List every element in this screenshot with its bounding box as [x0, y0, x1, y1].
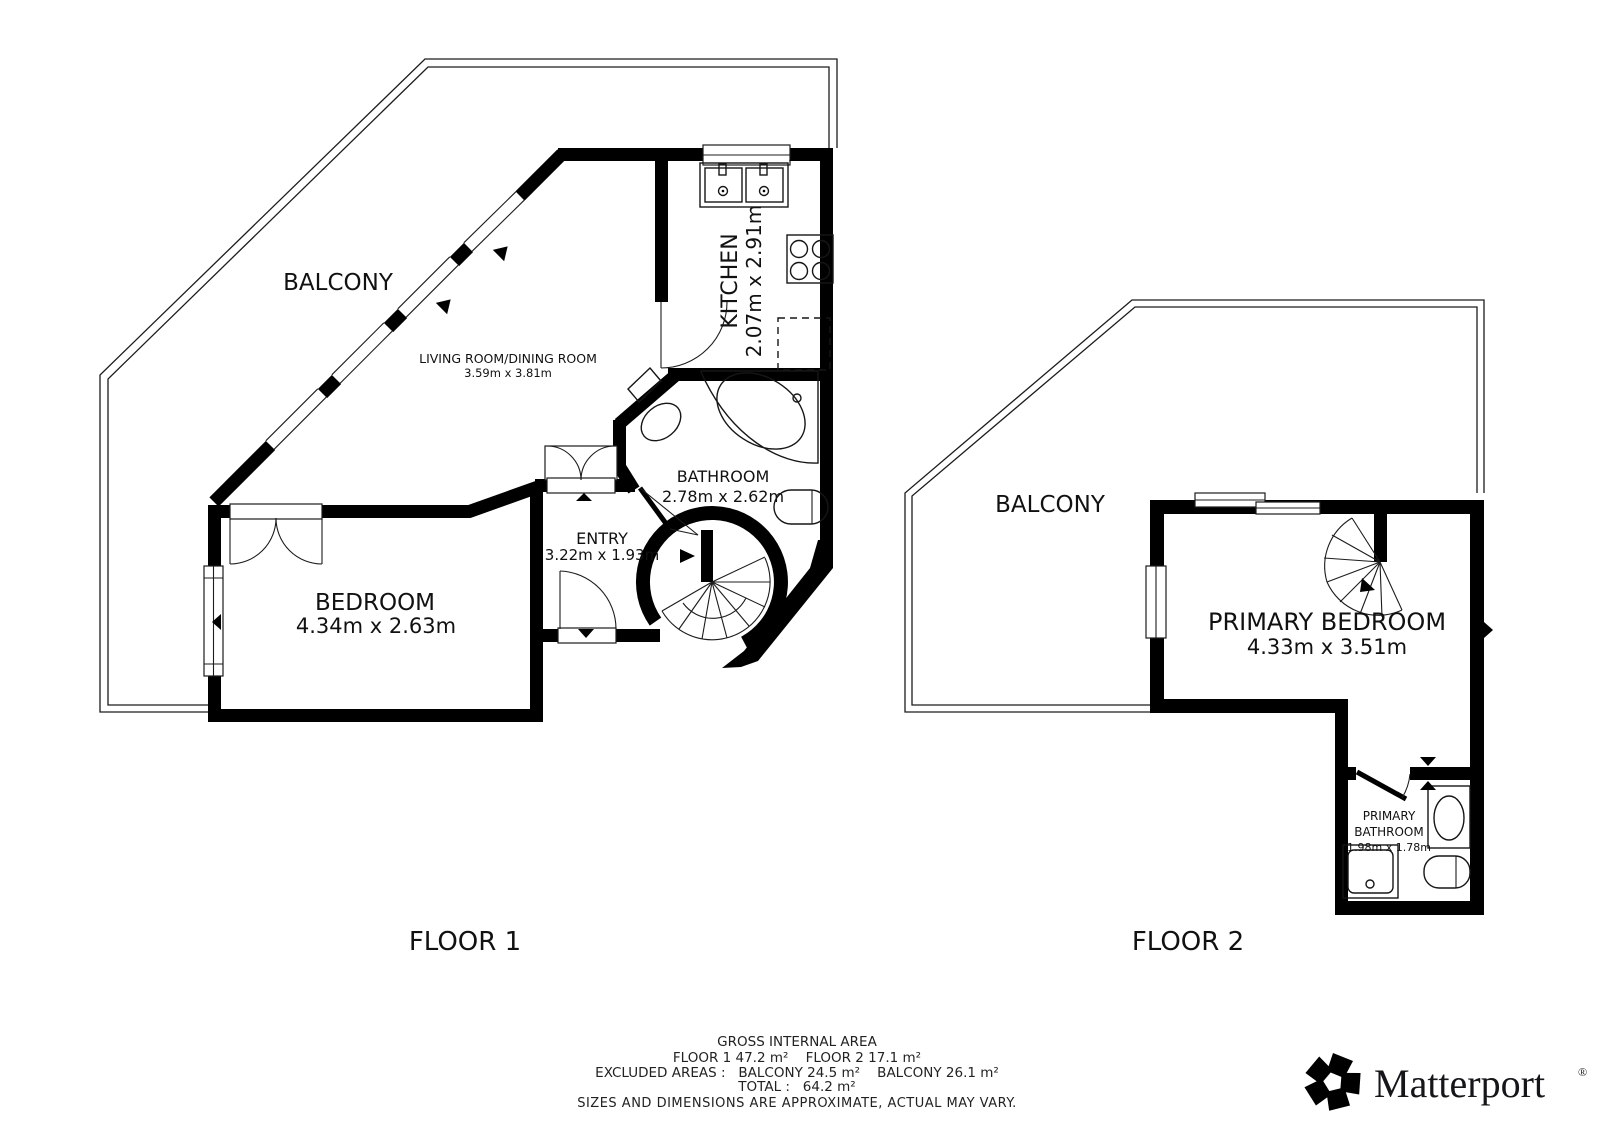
kitchen-label: KITCHEN — [718, 233, 743, 328]
kitchen-door — [655, 302, 727, 368]
bedroom-label: BEDROOM — [315, 590, 435, 616]
floor1-plan: BALCONY LIVING ROOM/DINING ROOM 3.59m x … — [100, 59, 837, 722]
stair-treads — [1324, 518, 1402, 617]
floor-titles: FLOOR 1 FLOOR 2 — [409, 927, 1244, 957]
floor-areas-line: FLOOR 1 47.2 m² FLOOR 2 17.1 m² — [673, 1050, 921, 1066]
stair-newel-wall — [701, 530, 713, 582]
floor2-plan: BALCONY PRIMARY BEDROOM 4.33m x 3.51m PR… — [905, 300, 1493, 915]
primary-bathroom-label-line1: PRIMARY — [1363, 809, 1416, 823]
entry-double-door — [545, 446, 617, 493]
registered-trademark-symbol: ® — [1578, 1065, 1587, 1079]
entry-dims: 3.22m x 1.93m — [545, 546, 659, 564]
primary-bedroom-left-window — [1146, 566, 1166, 638]
bathroom-label: BATHROOM — [677, 467, 770, 486]
bedroom-double-door — [230, 504, 322, 564]
floor1-title: FLOOR 1 — [409, 927, 521, 957]
living-room-dims: 3.59m x 3.81m — [464, 366, 552, 380]
floor2-spiral-staircase — [1324, 518, 1402, 617]
living-room-label: LIVING ROOM/DINING ROOM — [419, 351, 597, 366]
primary-bedroom-top-window-2 — [1256, 502, 1320, 514]
floorplan-canvas: BALCONY LIVING ROOM/DINING ROOM 3.59m x … — [0, 0, 1600, 1131]
gross-internal-area-title: GROSS INTERNAL AREA — [717, 1034, 877, 1050]
primary-bedroom-dims: 4.33m x 3.51m — [1247, 635, 1407, 659]
floor1-spiral-staircase — [636, 506, 833, 668]
stair-direction-arrow — [680, 549, 695, 563]
floor2-walls — [1150, 500, 1484, 915]
primary-bathroom-dims: 1.98m x 1.78m — [1347, 841, 1431, 854]
primary-bathroom-door — [1357, 772, 1410, 799]
balcony2-label: BALCONY — [995, 492, 1106, 518]
primary-bedroom-label: PRIMARY BEDROOM — [1208, 608, 1446, 636]
matterport-pinwheel-icon — [1300, 1053, 1367, 1117]
total-area-line: TOTAL : 64.2 m² — [737, 1079, 855, 1095]
balcony-label: BALCONY — [283, 270, 394, 296]
primary-bathroom-label-line2: BATHROOM — [1354, 825, 1423, 839]
bedroom-dims: 4.34m x 2.63m — [296, 614, 456, 638]
stair-treads — [662, 557, 770, 640]
primary-sink — [1424, 856, 1470, 888]
floorplan-page: BALCONY LIVING ROOM/DINING ROOM 3.59m x … — [0, 0, 1600, 1131]
kitchen-sink-unit — [700, 163, 788, 207]
area-summary: GROSS INTERNAL AREA FLOOR 1 47.2 m² FLOO… — [577, 1034, 1017, 1111]
bathroom-dims: 2.78m x 2.62m — [662, 487, 784, 506]
kitchen-window — [703, 145, 790, 165]
primary-toilet — [1428, 786, 1470, 848]
floor2-doors — [1357, 772, 1410, 799]
disclaimer-text: SIZES AND DIMENSIONS ARE APPROXIMATE, AC… — [577, 1096, 1017, 1111]
matterport-logo: Matterport ® — [1300, 1053, 1587, 1117]
primary-bedroom-top-window-1 — [1195, 493, 1265, 507]
matterport-wordmark: Matterport — [1374, 1061, 1545, 1106]
floor2-title: FLOOR 2 — [1132, 927, 1244, 957]
kitchen-dims: 2.07m x 2.91m — [742, 205, 766, 358]
